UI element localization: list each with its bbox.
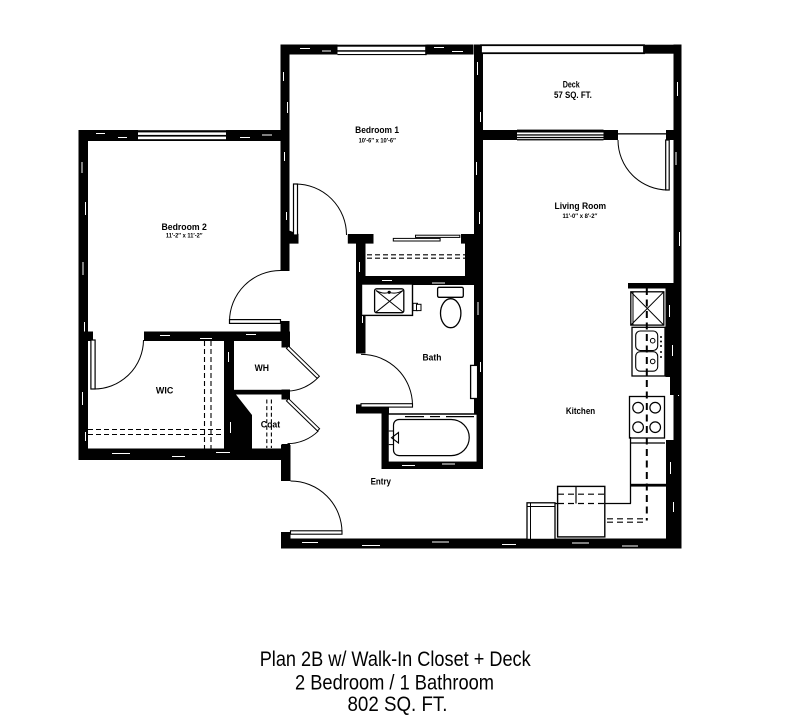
svg-text:Bath: Bath xyxy=(423,353,442,364)
svg-text:Entry: Entry xyxy=(371,476,392,487)
svg-text:2 Bedroom / 1 Bathroom: 2 Bedroom / 1 Bathroom xyxy=(295,672,494,695)
svg-text:Bedroom 1: Bedroom 1 xyxy=(355,125,399,136)
svg-text:10′-6″ x 10′-6″: 10′-6″ x 10′-6″ xyxy=(359,137,396,144)
svg-text:11′-0″ x 8′-2″: 11′-0″ x 8′-2″ xyxy=(562,213,597,220)
svg-text:Kitchen: Kitchen xyxy=(566,406,595,417)
svg-text:802 SQ. FT.: 802 SQ. FT. xyxy=(348,693,448,716)
svg-text:Bedroom 2: Bedroom 2 xyxy=(162,222,207,233)
svg-text:Plan 2B w/ Walk-In Closet + De: Plan 2B w/ Walk-In Closet + Deck xyxy=(260,648,531,671)
svg-text:Coat: Coat xyxy=(261,420,281,431)
svg-text:57 SQ. FT.: 57 SQ. FT. xyxy=(554,90,592,100)
svg-text:WH: WH xyxy=(255,363,269,374)
svg-text:Deck: Deck xyxy=(563,79,580,90)
svg-text:Living Room: Living Room xyxy=(555,201,607,212)
svg-text:11′-2″ x 11′-2″: 11′-2″ x 11′-2″ xyxy=(166,233,203,240)
svg-text:WIC: WIC xyxy=(156,386,173,397)
